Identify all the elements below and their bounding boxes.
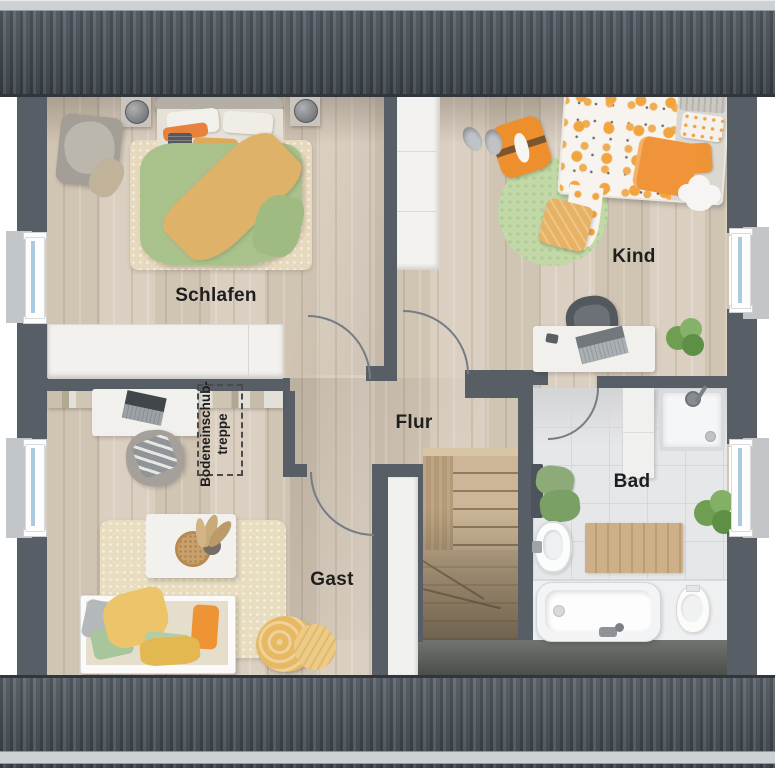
window-gast <box>25 444 45 532</box>
stairwell-white-panel <box>388 477 418 676</box>
room-label-schlafen: Schlafen <box>150 285 282 307</box>
wall-bad-top <box>597 376 727 388</box>
cabinet-seam <box>623 432 654 433</box>
wall-stair-left <box>372 477 388 676</box>
drain-icon <box>553 605 565 617</box>
coffee-table <box>146 514 236 578</box>
sink-basin <box>543 530 563 560</box>
room-label-flur: Flur <box>374 412 454 434</box>
kind-wardrobe <box>397 92 440 270</box>
wall-stair-top <box>372 464 423 477</box>
shower-drain-icon <box>705 431 716 442</box>
window-glass <box>31 448 35 526</box>
attic-hatch-label-line2: treppe <box>215 364 232 504</box>
room-label-bad: Bad <box>592 471 672 493</box>
attic-hatch-label: Bodeneinschub- treppe <box>198 364 242 504</box>
toilet-seat <box>681 594 703 622</box>
window-glass <box>31 241 35 313</box>
exterior-wall-right <box>727 309 757 444</box>
wall-kind-flur-block <box>465 370 533 398</box>
toilet <box>672 585 710 633</box>
exterior-wall-right <box>727 532 757 676</box>
roof-edge-cap-bottom <box>0 751 775 764</box>
cloud-part <box>686 191 713 211</box>
room-label-kind: Kind <box>594 246 674 268</box>
wardrobe-seam <box>248 325 249 379</box>
window-glass <box>738 448 742 526</box>
cloud-rug <box>678 175 722 213</box>
room-label-gast: Gast <box>292 569 372 591</box>
wall-gast-door <box>283 391 295 466</box>
staircase <box>423 448 518 640</box>
blanket-yellow-fold <box>139 635 201 667</box>
wall-gast-door-cap <box>283 464 307 477</box>
roof-band-top <box>0 0 775 97</box>
exterior-wall-left <box>17 92 47 238</box>
exterior-wall-left <box>17 532 47 676</box>
schlafen-wardrobe <box>48 324 283 379</box>
faucet-icon <box>532 541 542 553</box>
window-glass <box>738 237 742 303</box>
armchair-with-clothes <box>54 109 132 198</box>
exterior-wall-left <box>17 316 47 444</box>
stair-top-edge <box>423 448 518 456</box>
daybed <box>80 595 234 672</box>
wall-bad-jamb <box>533 371 548 385</box>
kind-wardrobe-seam <box>397 151 440 152</box>
wall-schlafen-kind <box>384 92 397 381</box>
blanket-ball-tail <box>294 624 336 670</box>
kind-wardrobe-seam <box>397 211 440 212</box>
bathtub <box>536 582 661 642</box>
knee-wall-strip <box>418 640 727 676</box>
tub-faucet-knob-icon <box>615 623 624 632</box>
wall-bad-left <box>518 398 533 640</box>
gast-armchair <box>124 428 186 488</box>
plant-icon <box>666 316 706 356</box>
roof-ridge-cap-top <box>0 0 775 11</box>
window-schlafen <box>25 237 45 319</box>
flush-button-icon <box>686 585 700 592</box>
blanket-ball <box>256 616 336 674</box>
wall-stair-right-edge <box>418 477 423 642</box>
stair-darkening <box>423 508 518 640</box>
plant-leaf <box>682 334 704 356</box>
wooden-bath-mat <box>585 523 683 573</box>
exterior-wall-right <box>727 92 757 233</box>
lamp-icon <box>294 99 318 123</box>
bathroom-cabinet <box>622 388 654 478</box>
sink <box>534 521 572 573</box>
desk-accessory <box>545 333 558 344</box>
shower <box>659 389 725 451</box>
attic-hatch-label-line1: Bodeneinschub- <box>198 364 215 504</box>
floor-plan: Schlafen Kind Flur Bad Gast Bodeneinschu… <box>0 0 775 768</box>
